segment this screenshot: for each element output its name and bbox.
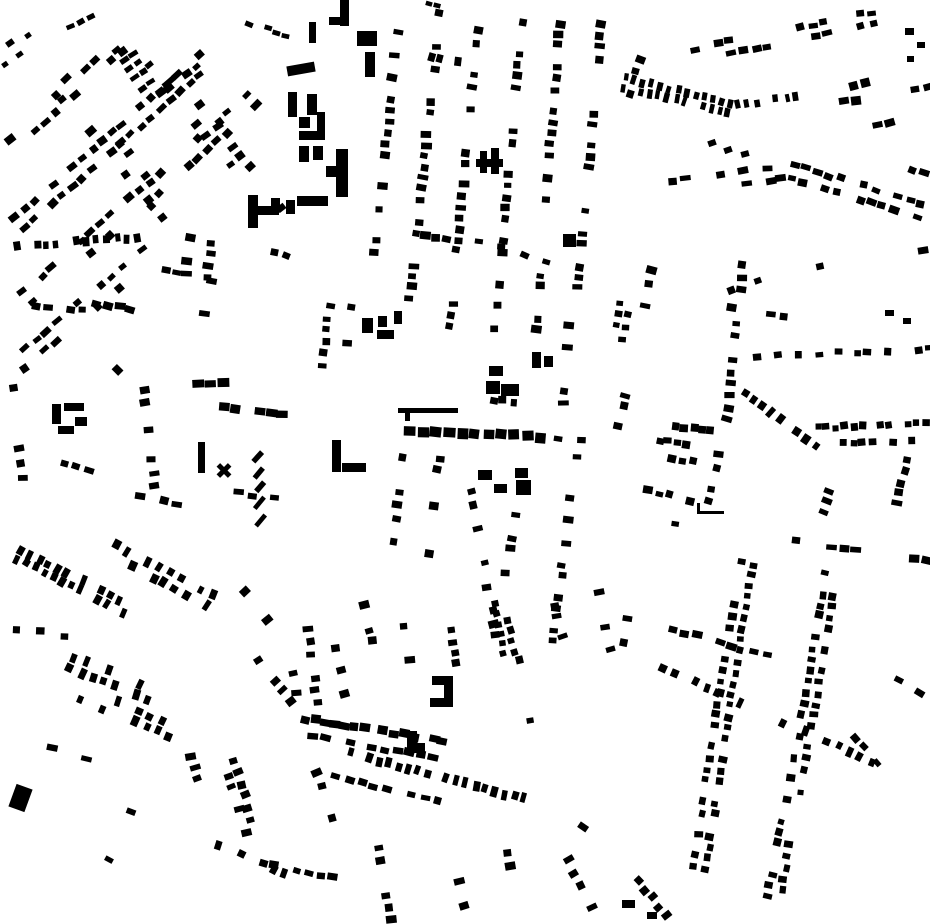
building-footprint <box>89 144 99 154</box>
building-footprint <box>583 163 594 171</box>
building-footprint <box>577 821 589 832</box>
building-footprint <box>299 146 309 162</box>
building-footprint <box>918 168 930 177</box>
building-footprint <box>826 615 833 622</box>
building-footprint <box>107 273 116 282</box>
building-footprint <box>797 178 808 187</box>
building-footprint <box>685 496 695 506</box>
building-footprint <box>133 233 141 243</box>
building-footprint <box>292 867 301 875</box>
building-footprint <box>563 234 576 247</box>
building-footprint <box>319 348 328 356</box>
building-footprint <box>563 321 574 329</box>
street-building-row <box>519 251 550 266</box>
building-footprint <box>19 222 30 233</box>
building-footprint <box>812 442 821 451</box>
building-footprint <box>542 258 551 265</box>
building-footprint <box>805 678 812 684</box>
building-footprint <box>276 410 288 418</box>
building-footprint <box>66 306 75 314</box>
building-footprint <box>207 240 215 247</box>
building-footprint <box>270 494 279 500</box>
building-footprint <box>326 166 337 177</box>
building-footprint <box>34 241 41 249</box>
building-footprint <box>271 198 280 207</box>
building-footprint <box>818 508 828 516</box>
building-footprint <box>809 647 816 653</box>
street-building-row <box>818 487 834 516</box>
building-footprint <box>19 363 30 374</box>
building-footprint <box>432 676 446 685</box>
building-footprint <box>491 600 499 608</box>
building-footprint <box>304 869 314 877</box>
building-footprint <box>69 89 81 101</box>
street-building-row <box>640 265 658 309</box>
building-footprint <box>76 17 85 26</box>
street-building-row <box>9 384 28 481</box>
building-footprint <box>816 423 822 429</box>
building-footprint <box>638 88 645 96</box>
building-footprint <box>737 260 746 269</box>
building-footprint <box>850 96 861 106</box>
building-footprint <box>676 85 683 94</box>
building-footprint <box>451 658 460 667</box>
building-footprint <box>511 399 518 407</box>
building-footprint <box>64 403 84 411</box>
building-footprint <box>79 307 86 313</box>
building-footprint <box>331 644 340 652</box>
street-building-row <box>840 437 915 447</box>
building-footprint <box>557 632 568 640</box>
building-footprint <box>300 715 310 724</box>
building-footprint <box>736 286 747 294</box>
building-footprint <box>917 246 928 254</box>
building-footprint <box>286 62 315 77</box>
building-footprint <box>706 426 714 434</box>
building-footprint <box>727 370 735 377</box>
building-footprint <box>451 649 460 657</box>
building-footprint <box>473 781 481 792</box>
building-footprint <box>631 67 640 75</box>
building-footprint <box>254 513 267 527</box>
building-footprint <box>732 670 739 678</box>
building-footprint <box>60 73 72 85</box>
building-footprint <box>703 853 710 861</box>
street-building-row <box>656 437 691 449</box>
building-footprint <box>573 454 582 459</box>
building-footprint <box>9 384 18 392</box>
building-footprint <box>724 36 734 44</box>
building-footprint <box>725 624 734 631</box>
building-footprint <box>254 480 266 493</box>
street-building-row <box>374 845 397 924</box>
building-footprint <box>504 183 511 188</box>
building-footprint <box>542 196 550 203</box>
building-footprint <box>416 197 425 203</box>
building-footprint <box>828 592 837 601</box>
building-footprint <box>555 20 566 29</box>
building-footprint <box>819 18 828 26</box>
building-footprint <box>43 241 49 249</box>
building-footprint <box>347 303 356 310</box>
building-footprint <box>458 901 469 911</box>
building-footprint <box>132 689 142 701</box>
building-footprint <box>104 855 114 864</box>
building-footprint <box>99 676 107 685</box>
street-building-row <box>490 396 517 407</box>
building-footprint <box>753 353 762 361</box>
building-footprint <box>233 488 244 495</box>
building-footprint <box>106 590 115 600</box>
building-footprint <box>655 491 664 498</box>
building-footprint <box>365 627 374 635</box>
building-footprint <box>691 850 700 858</box>
building-footprint <box>876 201 886 210</box>
building-footprint <box>127 560 138 572</box>
building-footprint <box>536 273 544 279</box>
building-footprint <box>737 625 746 634</box>
building-footprint <box>481 584 491 592</box>
building-footprint <box>347 747 354 756</box>
building-footprint <box>457 192 467 200</box>
building-footprint <box>905 421 912 427</box>
street-building-row <box>741 388 821 450</box>
building-footprint <box>503 171 512 178</box>
building-footprint <box>395 489 404 496</box>
building-footprint <box>449 301 458 306</box>
building-footprint <box>690 423 699 432</box>
building-footprint <box>728 357 738 363</box>
building-footprint <box>622 615 632 622</box>
building-footprint <box>202 262 214 270</box>
street-building-row <box>445 26 484 330</box>
building-footprint <box>819 591 826 600</box>
building-footprint <box>909 554 920 563</box>
building-footprint <box>718 97 726 106</box>
building-footprint <box>309 686 319 694</box>
building-footprint <box>137 84 147 93</box>
building-footprint <box>234 150 246 162</box>
building-footprint <box>729 681 737 689</box>
street-building-row <box>300 714 447 746</box>
building-footprint <box>762 44 771 51</box>
building-footprint <box>421 794 431 801</box>
building-footprint <box>749 395 759 405</box>
building-footprint <box>716 171 726 179</box>
building-footprint <box>838 97 849 105</box>
building-footprint <box>494 484 507 493</box>
building-footprint <box>60 460 69 468</box>
building-footprint <box>330 772 340 780</box>
building-footprint <box>468 500 477 509</box>
building-footprint <box>102 301 114 311</box>
building-footprint <box>594 43 605 50</box>
building-footprint <box>120 169 130 179</box>
building-footprint <box>906 197 916 204</box>
building-footprint <box>214 840 223 851</box>
building-footprint <box>128 49 139 58</box>
building-footprint <box>126 807 137 816</box>
street-building-row <box>447 626 460 667</box>
building-footprint <box>159 496 169 506</box>
street-building-row <box>613 392 631 430</box>
building-footprint <box>139 386 150 395</box>
building-footprint <box>727 612 737 621</box>
building-footprint <box>510 84 521 91</box>
building-footprint <box>836 173 846 182</box>
building-footprint <box>41 569 49 578</box>
building-footprint <box>186 78 196 88</box>
building-footprint <box>359 722 371 732</box>
street-building-row <box>270 248 291 260</box>
building-footprint <box>796 710 805 719</box>
building-footprint <box>366 744 377 752</box>
building-footprint <box>778 876 787 884</box>
building-footprint <box>630 74 638 85</box>
building-footprint <box>795 22 805 31</box>
building-footprint <box>893 192 903 200</box>
building-footprint <box>239 585 251 597</box>
building-footprint <box>134 707 144 717</box>
building-footprint <box>430 698 453 707</box>
building-footprint <box>135 679 145 690</box>
building-footprint <box>542 174 553 183</box>
building-footprint <box>703 683 711 693</box>
building-footprint <box>408 273 416 279</box>
building-footprint <box>468 428 479 439</box>
building-footprint <box>905 28 914 35</box>
building-footprint <box>135 101 145 111</box>
building-footprint <box>8 784 32 812</box>
building-footprint <box>510 648 518 656</box>
building-footprint <box>452 775 460 786</box>
building-footprint <box>850 547 861 553</box>
building-footprint <box>161 266 171 274</box>
building-footprint <box>691 676 700 686</box>
building-footprint <box>297 196 328 206</box>
building-footprint <box>390 538 398 546</box>
building-footprint <box>181 590 192 602</box>
building-footprint <box>605 645 615 653</box>
street-building-row <box>792 536 930 565</box>
building-footprint <box>501 384 519 396</box>
building-footprint <box>763 892 773 899</box>
building-footprint <box>812 168 824 177</box>
building-footprint <box>561 540 571 547</box>
street-building-row <box>424 456 445 559</box>
building-footprint <box>618 337 626 343</box>
building-footprint <box>125 129 135 139</box>
building-footprint <box>389 52 400 58</box>
building-footprint <box>572 284 582 290</box>
building-footprint <box>820 184 830 193</box>
building-footprint <box>907 56 914 62</box>
building-footprint <box>752 44 763 53</box>
building-footprint <box>29 214 39 224</box>
building-footprint <box>89 672 98 683</box>
building-footprint <box>490 325 498 332</box>
building-footprint <box>388 730 399 739</box>
building-footprint <box>809 711 818 717</box>
building-footprint <box>800 699 810 707</box>
building-footprint <box>279 868 288 879</box>
building-footprint <box>436 456 445 463</box>
building-footprint <box>302 626 313 633</box>
building-footprint <box>144 712 154 722</box>
building-footprint <box>185 752 197 761</box>
building-footprint <box>782 795 791 803</box>
building-footprint <box>654 90 660 99</box>
building-footprint <box>749 648 759 656</box>
building-footprint <box>545 152 555 158</box>
building-footprint <box>490 397 499 405</box>
building-footprint <box>155 167 167 179</box>
building-footprint <box>501 790 508 801</box>
building-footprint <box>867 10 876 16</box>
building-footprint <box>291 690 302 697</box>
street-building-row <box>689 558 758 873</box>
building-footprint <box>726 701 733 707</box>
building-footprint <box>467 488 476 496</box>
street-building-row <box>427 52 462 66</box>
building-footprint <box>114 283 125 294</box>
building-footprint <box>288 92 297 117</box>
building-footprint <box>782 852 791 859</box>
building-footprint <box>171 501 182 508</box>
building-footprint <box>859 421 867 429</box>
building-footprint <box>578 231 587 237</box>
building-footprint <box>461 160 469 167</box>
building-footprint <box>208 589 218 601</box>
street-building-row <box>753 345 930 361</box>
building-footprint <box>504 861 516 871</box>
building-footprint <box>368 636 377 645</box>
street-building-row <box>816 419 930 431</box>
building-footprint <box>369 249 379 256</box>
building-footprint <box>803 744 811 750</box>
street-building-row <box>76 695 173 742</box>
building-footprint <box>434 9 443 17</box>
building-footprint <box>620 392 631 400</box>
building-footprint <box>723 404 734 413</box>
building-footprint <box>80 63 91 74</box>
building-footprint <box>854 751 864 762</box>
building-footprint <box>13 626 20 633</box>
building-footprint <box>32 335 42 344</box>
street-building-row <box>144 60 286 213</box>
building-footprint <box>77 153 87 162</box>
building-footprint <box>272 30 281 37</box>
building-footprint <box>385 903 394 912</box>
building-footprint <box>123 191 135 203</box>
building-footprint <box>8 211 20 223</box>
building-footprint <box>489 786 499 798</box>
building-footprint <box>783 864 790 873</box>
building-footprint <box>181 271 192 277</box>
map-container <box>0 0 930 924</box>
street-building-row <box>668 625 772 658</box>
building-footprint <box>142 556 152 568</box>
building-footprint <box>1 61 9 69</box>
building-footprint <box>816 262 825 270</box>
building-footprint <box>89 55 100 66</box>
building-footprint <box>137 122 147 132</box>
building-footprint <box>433 2 441 8</box>
building-footprint <box>763 651 773 658</box>
building-footprint <box>613 422 623 431</box>
street-building-row <box>13 626 69 640</box>
building-footprint <box>723 146 733 154</box>
building-footprint <box>673 439 681 446</box>
building-footprint <box>39 344 50 354</box>
building-footprint <box>20 203 31 213</box>
building-footprint <box>700 102 707 110</box>
building-footprint <box>732 321 740 327</box>
building-footprint <box>558 400 569 405</box>
building-footprint <box>461 777 469 789</box>
building-footprint <box>73 298 83 307</box>
building-footprint <box>163 731 173 742</box>
building-footprint <box>856 10 864 17</box>
building-footprint <box>40 117 51 128</box>
building-footprint <box>486 381 500 394</box>
building-footprint <box>416 183 427 191</box>
building-footprint <box>258 206 279 215</box>
building-footprint <box>327 872 338 881</box>
building-footprint <box>757 400 768 411</box>
building-footprint <box>619 638 628 647</box>
building-footprint <box>96 135 108 147</box>
building-footprint <box>237 780 247 789</box>
building-footprint <box>495 281 504 289</box>
building-footprint <box>244 161 256 173</box>
building-footprint <box>154 725 163 735</box>
building-footprint <box>16 286 27 296</box>
building-footprint <box>18 475 28 481</box>
building-footprint <box>134 185 144 195</box>
building-footprint <box>156 103 167 114</box>
street-building-row <box>503 849 516 871</box>
building-footprint <box>106 55 117 66</box>
building-footprint <box>299 117 310 128</box>
building-footprint <box>534 316 541 323</box>
building-footprint <box>711 809 720 817</box>
building-footprint <box>137 244 148 254</box>
building-footprint <box>499 650 507 657</box>
building-footprint <box>58 426 74 434</box>
building-footprint <box>286 200 295 214</box>
building-footprint <box>701 776 708 783</box>
building-footprint <box>640 302 651 309</box>
street-building-row <box>244 20 289 39</box>
building-footprint <box>779 313 788 321</box>
building-footprint <box>726 691 735 699</box>
building-footprint <box>701 92 707 101</box>
building-footprint <box>122 546 132 558</box>
building-footprint <box>505 544 516 552</box>
building-footprint <box>391 500 402 509</box>
building-footprint <box>365 52 375 77</box>
building-footprint <box>647 89 653 99</box>
building-footprint <box>896 479 906 488</box>
building-footprint <box>885 421 893 429</box>
building-footprint <box>114 302 126 310</box>
building-footprint <box>277 685 288 696</box>
building-footprint <box>282 251 291 260</box>
building-footprint <box>516 51 523 57</box>
building-footprint <box>575 880 585 890</box>
building-footprint <box>336 149 348 197</box>
